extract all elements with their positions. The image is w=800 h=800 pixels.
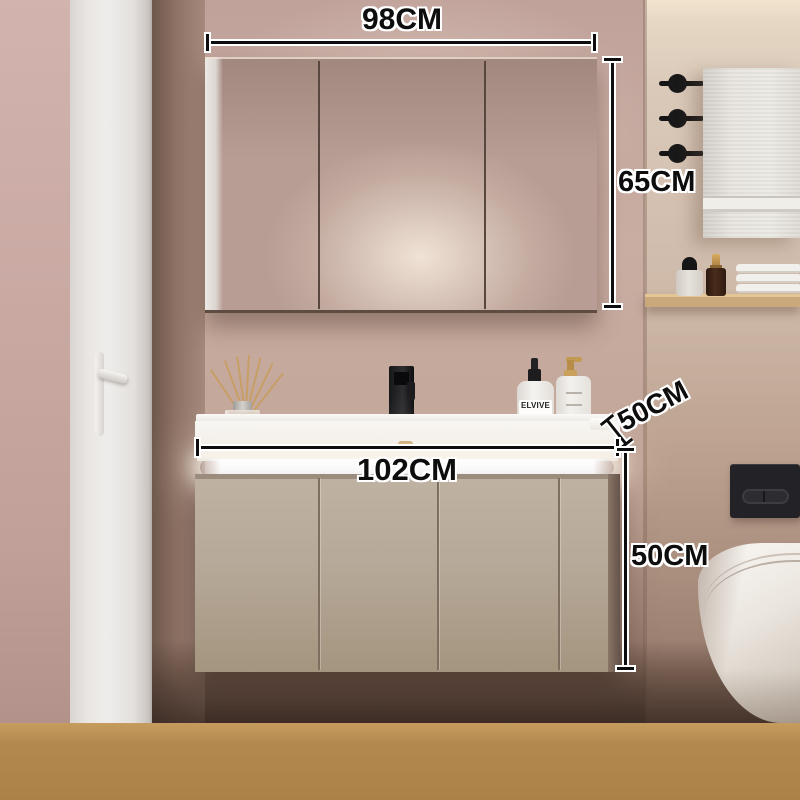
- dimension-tick: [206, 34, 209, 51]
- mirror-reflection: [205, 57, 597, 313]
- mirror-height-dimension-line: [611, 60, 614, 307]
- folded-towel: [736, 284, 800, 293]
- soap-label-line: [566, 404, 582, 406]
- faucet-handle: [407, 382, 415, 400]
- dimension-tick: [604, 305, 621, 308]
- soap-label-line: [566, 392, 582, 394]
- mirror-cabinet-side-panel: [205, 57, 223, 313]
- vanity-door-seam: [558, 478, 560, 670]
- dimension-tick: [196, 439, 199, 456]
- wall-hung-toilet: [698, 543, 800, 723]
- bathroom-door: [70, 0, 152, 723]
- dimension-tick: [617, 448, 634, 451]
- mirror-bottom-edge: [205, 310, 597, 313]
- mirror-height-label: 65CM: [618, 166, 695, 199]
- product-photo: ELVIVE 98CM 65CM: [0, 0, 800, 800]
- mirror-top-edge: [205, 57, 597, 59]
- dimension-tick: [593, 34, 596, 51]
- wall-corner-line: [643, 0, 647, 723]
- hanging-towel: [703, 68, 800, 238]
- mirror-door-seam: [318, 61, 320, 309]
- vanity-door-seam: [437, 478, 439, 670]
- mirror-door-seam: [484, 61, 486, 309]
- vanity-door-seam: [318, 478, 320, 670]
- left-pink-wall: [0, 0, 70, 723]
- caption-banner: 100CM 丨 普通镜柜 陶瓷一体盆: [0, 723, 800, 800]
- mirror-cabinet: [205, 57, 597, 313]
- dimension-tick: [604, 58, 621, 61]
- vanity-height-dimension-line: [624, 450, 627, 670]
- essence-bottle: [706, 268, 726, 296]
- dimension-tick: [617, 667, 634, 670]
- toilet-shading: [698, 543, 800, 723]
- vanity-height-label: 50CM: [631, 540, 708, 573]
- vanity-side-panel: [608, 474, 620, 672]
- mirror-width-label: 98CM: [352, 3, 452, 37]
- shampoo-brand-text: ELVIVE: [521, 401, 550, 410]
- folded-towel: [736, 264, 800, 273]
- towel-hook-disc: [668, 74, 687, 93]
- flush-button: [742, 489, 789, 504]
- vanity-width-label: 102CM: [347, 452, 467, 488]
- mirror-width-dimension-line: [207, 41, 595, 44]
- flush-plate: [730, 464, 800, 518]
- towel-hook-disc: [668, 144, 687, 163]
- door-handle-plate: [95, 352, 104, 436]
- flush-button-divider: [763, 491, 765, 502]
- perfume-bottle: [676, 270, 703, 296]
- towel-hook-disc: [668, 109, 687, 128]
- vanity-width-dimension-line: [197, 446, 618, 449]
- vanity-cabinet: [195, 474, 620, 672]
- towel-band: [703, 196, 800, 212]
- folded-towel: [736, 274, 800, 283]
